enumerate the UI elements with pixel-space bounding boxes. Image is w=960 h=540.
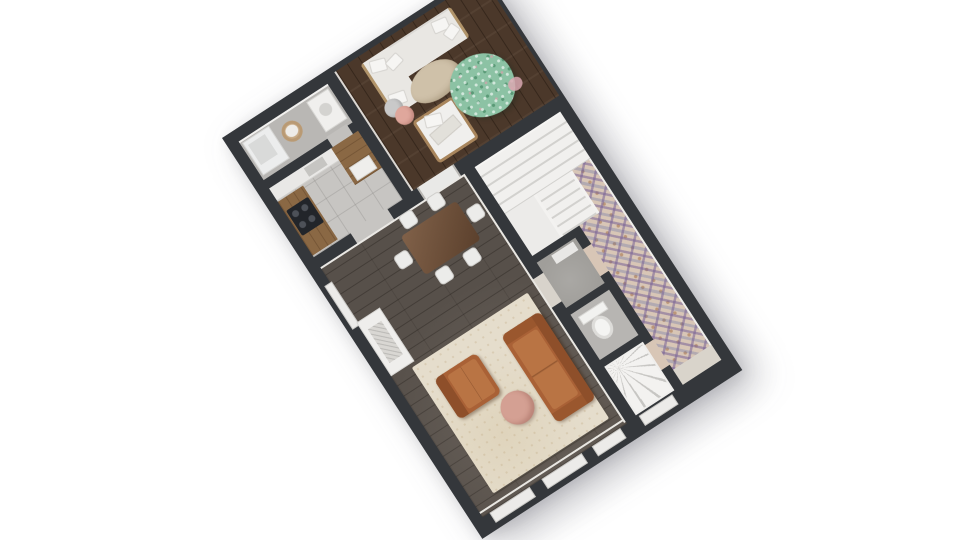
screenshot-canvas: [0, 0, 960, 540]
floor-plan-building: [222, 0, 742, 539]
